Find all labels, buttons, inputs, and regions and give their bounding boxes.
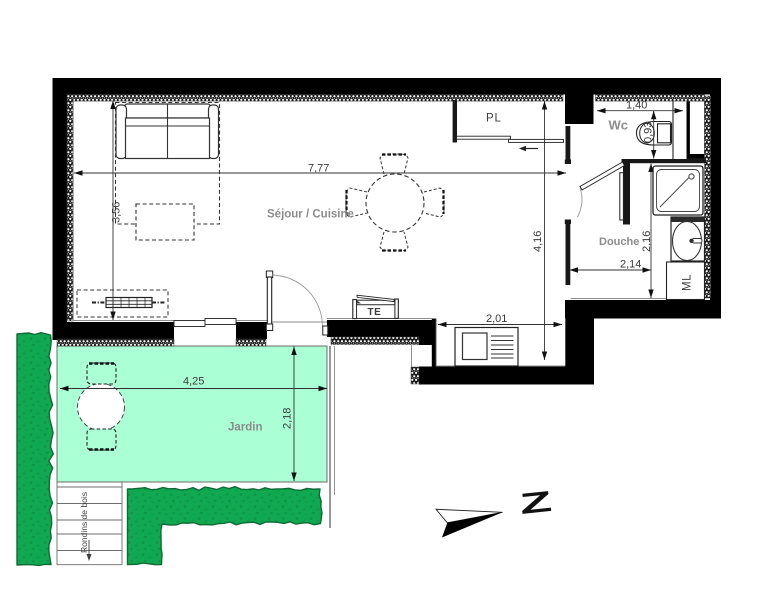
svg-text:4,16: 4,16 — [532, 231, 544, 252]
svg-text:Rondins de bois: Rondins de bois — [79, 492, 89, 553]
svg-text:4,25: 4,25 — [183, 376, 204, 388]
svg-text:2,18: 2,18 — [282, 408, 294, 429]
svg-text:0,93: 0,93 — [643, 122, 655, 143]
svg-text:Wc: Wc — [609, 118, 629, 133]
svg-text:Jardin: Jardin — [228, 422, 263, 434]
svg-text:1,40: 1,40 — [626, 100, 647, 112]
svg-text:7,77: 7,77 — [308, 163, 329, 175]
svg-text:PL: PL — [486, 113, 502, 125]
svg-text:TE: TE — [368, 307, 382, 318]
svg-text:2,16: 2,16 — [641, 231, 653, 252]
svg-text:Séjour / Cuisine: Séjour / Cuisine — [267, 209, 354, 221]
svg-text:ML: ML — [682, 274, 694, 291]
svg-text:Z: Z — [518, 485, 553, 520]
svg-text:2,01: 2,01 — [486, 313, 507, 325]
svg-text:2,14: 2,14 — [620, 259, 641, 271]
svg-text:3,56: 3,56 — [111, 202, 123, 223]
svg-text:Douche: Douche — [599, 236, 639, 248]
